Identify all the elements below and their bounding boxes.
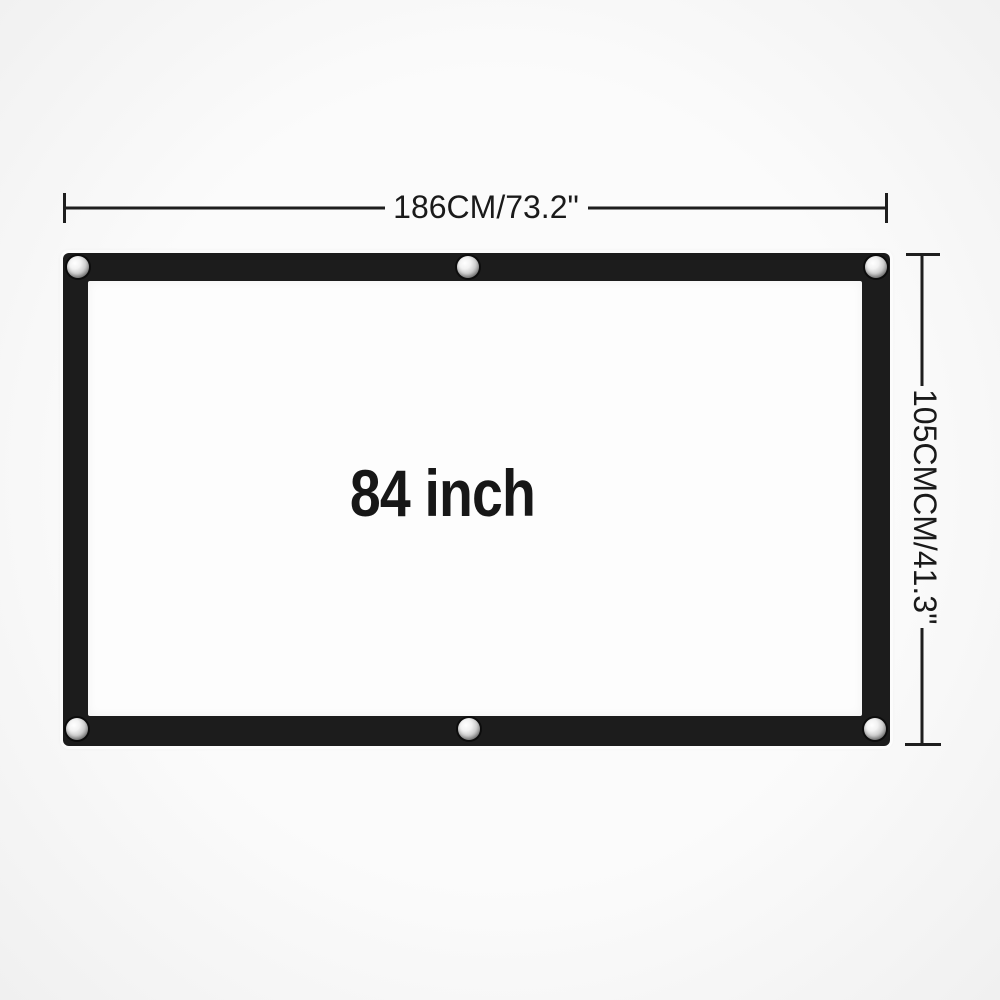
height-dimension-label: 105CMCM/41.3" (903, 386, 947, 628)
grommet-icon (66, 718, 88, 740)
grommet-icon (458, 718, 480, 740)
grommet-icon (864, 718, 886, 740)
grommet-icon (865, 256, 887, 278)
product-dimension-diagram: 186CM/73.2" 105CMCM/41.3" 84 inch (0, 0, 1000, 1000)
grommet-icon (67, 256, 89, 278)
screen-size-label: 84 inch (348, 460, 537, 526)
width-dimension-label: 186CM/73.2" (386, 189, 586, 225)
grommet-icon (457, 256, 479, 278)
